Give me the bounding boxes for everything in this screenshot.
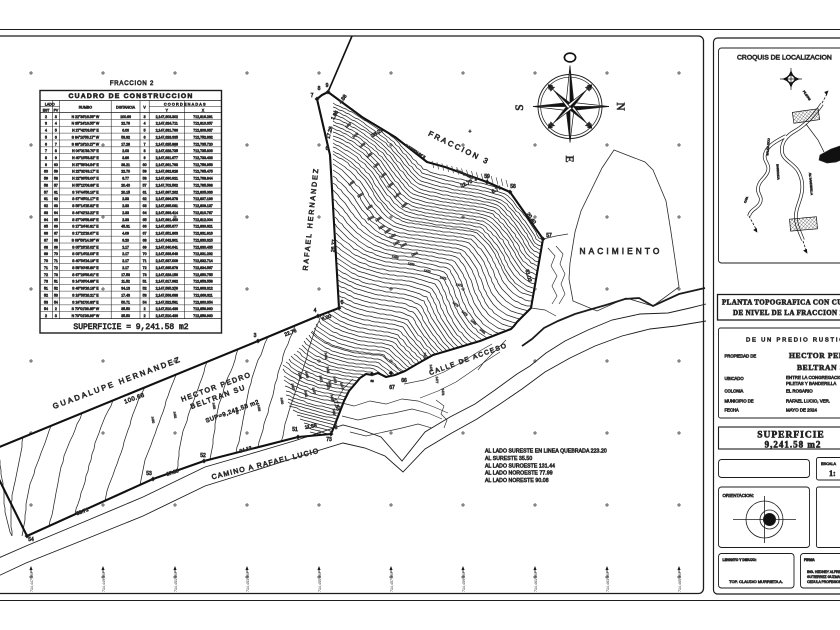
svg-text:70: 70: [54, 252, 58, 256]
svg-text:S 27°24'40.81" E: S 27°24'40.81" E: [72, 225, 99, 229]
svg-text:714,449,500: 714,449,500: [102, 572, 106, 592]
svg-text:71: 71: [143, 259, 147, 263]
svg-text:S: S: [514, 104, 526, 110]
svg-text:57: 57: [143, 184, 147, 188]
svg-text:71: 71: [54, 259, 58, 263]
svg-text:1483: 1483: [328, 380, 333, 387]
svg-text:67: 67: [44, 238, 48, 242]
svg-text:S 67°29'56.61" E: S 67°29'56.61" E: [72, 273, 99, 277]
svg-text:58: 58: [143, 177, 147, 181]
svg-text:712,752.862: 712,752.862: [193, 135, 213, 139]
svg-text:AL LADO NORESTE 90.08: AL LADO NORESTE 90.08: [485, 478, 549, 484]
svg-text:ESCALA: ESCALA: [821, 462, 836, 466]
svg-text:2,147,585.279: 2,147,585.279: [156, 287, 178, 291]
svg-text:CUADRO DE CONSTRUCCION: CUADRO DE CONSTRUCCION: [69, 93, 194, 100]
svg-text:1476: 1476: [429, 365, 433, 372]
svg-text:70: 70: [44, 259, 48, 263]
svg-text:S 14°03'04.88" E: S 14°03'04.88" E: [72, 280, 99, 284]
svg-text:1:: 1:: [829, 469, 836, 478]
svg-text:22.76: 22.76: [121, 122, 130, 126]
svg-text:2,147,655.677: 2,147,655.677: [156, 225, 178, 229]
svg-text:3: 3: [144, 115, 146, 119]
svg-text:N 22°36'53.00" E: N 22°36'53.00" E: [72, 177, 99, 181]
svg-text:712,830.435: 712,830.435: [193, 245, 213, 249]
svg-text:64: 64: [143, 211, 147, 215]
svg-text:54: 54: [143, 300, 147, 304]
svg-text:N 70°01'36.86" W: N 70°01'36.86" W: [72, 314, 100, 318]
svg-text:72: 72: [44, 273, 48, 277]
svg-text:60: 60: [143, 163, 147, 167]
svg-text:57: 57: [546, 233, 552, 239]
svg-text:E: E: [563, 155, 575, 162]
svg-text:712,860.354: 712,860.354: [193, 300, 213, 304]
svg-text:2,147,693.414: 2,147,693.414: [156, 211, 178, 215]
svg-text:FECHA: FECHA: [725, 408, 739, 413]
svg-text:2: 2: [55, 307, 57, 311]
svg-text:712,856.960: 712,856.960: [193, 307, 213, 311]
svg-text:FIRMA: FIRMA: [804, 558, 815, 562]
svg-text:714,463,500: 714,463,500: [606, 572, 610, 592]
svg-text:58: 58: [510, 184, 516, 190]
svg-text:1478: 1478: [441, 389, 445, 396]
svg-text:51: 51: [292, 427, 298, 433]
svg-text:2,147,625.808: 2,147,625.808: [156, 142, 178, 146]
svg-text:8.77: 8.77: [122, 177, 129, 181]
svg-text:N 04°01'39.70" E: N 04°01'39.70" E: [72, 149, 99, 153]
svg-text:712,831.916: 712,831.916: [193, 232, 213, 236]
svg-text:UBICADO: UBICADO: [725, 376, 745, 381]
svg-text:8: 8: [45, 156, 47, 160]
svg-text:LADO: LADO: [45, 102, 55, 106]
svg-text:712,735.806: 712,735.806: [193, 149, 213, 153]
svg-text:6: 6: [144, 135, 146, 139]
svg-text:AL LADO SUROESTE 131.44: AL LADO SUROESTE 131.44: [485, 463, 555, 469]
svg-text:2,147,690.921: 2,147,690.921: [156, 177, 178, 181]
svg-text:712,816.291: 712,816.291: [193, 115, 213, 119]
svg-text:714,455,500: 714,455,500: [318, 572, 322, 592]
svg-text:N 35°24'16.55" W: N 35°24'16.55" W: [72, 122, 100, 126]
svg-text:2: 2: [45, 115, 47, 119]
svg-text:9: 9: [55, 156, 57, 160]
svg-text:2.33: 2.33: [122, 218, 129, 222]
svg-text:2,147,510.436: 2,147,510.436: [156, 307, 178, 311]
svg-text:712,850.755: 712,850.755: [193, 273, 213, 277]
svg-text:3.86: 3.86: [122, 156, 129, 160]
svg-text:63: 63: [54, 204, 58, 208]
svg-text:70: 70: [143, 252, 147, 256]
svg-text:FRACCION 2: FRACCION 2: [110, 81, 154, 87]
svg-text:2.17: 2.17: [122, 252, 129, 256]
svg-text:ORIENTACION:: ORIENTACION:: [723, 493, 754, 498]
svg-text:59: 59: [484, 174, 490, 180]
svg-text:2.33: 2.33: [122, 211, 129, 215]
svg-text:HECTOR PEDRO: HECTOR PEDRO: [789, 351, 840, 360]
svg-text:11.52: 11.52: [121, 280, 130, 284]
svg-text:N 22°36'16.56" W: N 22°36'16.56" W: [72, 115, 100, 119]
svg-text:60: 60: [54, 163, 58, 167]
svg-text:2,147,628.335: 2,147,628.335: [156, 135, 178, 139]
svg-text:1485: 1485: [332, 408, 337, 415]
svg-text:53: 53: [54, 293, 58, 297]
svg-text:2: 2: [144, 314, 146, 318]
svg-text:712,831.292: 712,831.292: [193, 252, 213, 256]
svg-text:50.71: 50.71: [121, 300, 130, 304]
svg-text:68: 68: [44, 245, 48, 249]
svg-text:N 22°02'43.17" E: N 22°02'43.17" E: [72, 170, 99, 174]
svg-text:5: 5: [55, 129, 57, 133]
svg-text:N 55°12'09.88" E: N 55°12'09.88" E: [72, 184, 99, 188]
svg-text:4: 4: [55, 122, 57, 126]
svg-text:72: 72: [143, 266, 147, 270]
svg-text:3: 3: [254, 333, 257, 339]
svg-text:712,812.004: 712,812.004: [193, 218, 213, 222]
svg-text:2.03: 2.03: [122, 149, 129, 153]
svg-text:S 74°44'56.10" E: S 74°44'56.10" E: [72, 190, 99, 194]
svg-text:712,733.433: 712,733.433: [193, 156, 213, 160]
svg-text:17.28: 17.28: [121, 142, 130, 146]
svg-text:2,147,682.828: 2,147,682.828: [156, 170, 178, 174]
svg-text:712,807.196: 712,807.196: [193, 197, 213, 201]
svg-text:6.06: 6.06: [122, 129, 129, 133]
svg-text:714,459,500: 714,459,500: [462, 572, 466, 592]
svg-text:PILETAS Y BANDERILLA: PILETAS Y BANDERILLA: [786, 381, 836, 386]
svg-text:57: 57: [44, 190, 48, 194]
svg-text:2,147,642.801: 2,147,642.801: [156, 238, 178, 242]
svg-text:EL ROSARIO: EL ROSARIO: [786, 389, 813, 394]
svg-text:S 88°18'10.27" W: S 88°18'10.27" W: [72, 142, 100, 146]
svg-text:+: +: [469, 129, 472, 135]
svg-text:65: 65: [54, 218, 58, 222]
svg-text:712,853.558: 712,853.558: [193, 280, 213, 284]
svg-text:51: 51: [143, 280, 147, 284]
svg-text:73: 73: [143, 273, 147, 277]
svg-text:S 44°42'13.22" E: S 44°42'13.22" E: [72, 211, 99, 215]
svg-text:MUNICIPIO DE: MUNICIPIO DE: [725, 399, 754, 404]
svg-text:2,147,617.982: 2,147,617.982: [156, 280, 178, 284]
svg-text:63: 63: [143, 204, 147, 208]
svg-text:22.70: 22.70: [121, 170, 130, 174]
svg-text:2,147,640.641: 2,147,640.641: [156, 245, 178, 249]
svg-text:4: 4: [45, 129, 47, 133]
svg-text:6: 6: [341, 300, 344, 306]
svg-text:714,465,500: 714,465,500: [678, 572, 682, 592]
svg-text:2,147,510.436: 2,147,510.436: [156, 314, 178, 318]
svg-text:S 46°39'26.18" E: S 46°39'26.18" E: [72, 287, 99, 291]
svg-text:S 58°30'45.80" E: S 58°30'45.80" E: [72, 266, 99, 270]
svg-text:62: 62: [54, 197, 58, 201]
svg-text:5: 5: [45, 135, 47, 139]
svg-text:2,147,603.302: 2,147,603.302: [156, 115, 178, 119]
svg-text:712,756.956: 712,756.956: [193, 163, 213, 167]
svg-text:AL LADO NOROESTE 77.99: AL LADO NOROESTE 77.99: [485, 471, 553, 477]
svg-text:67: 67: [389, 385, 395, 391]
svg-text:3: 3: [55, 115, 57, 119]
svg-text:67: 67: [54, 232, 58, 236]
svg-text:DE NIVEL DE LA FRACCION 2: DE NIVEL DE LA FRACCION 2: [733, 309, 840, 317]
svg-text:712,765.475: 712,765.475: [193, 170, 213, 174]
svg-text:20.40: 20.40: [121, 184, 130, 188]
svg-text:714,457,500: 714,457,500: [390, 572, 394, 592]
svg-text:S 24°31'00.83" E: S 24°31'00.83" E: [72, 300, 99, 304]
svg-text:S 84°10'56.17" W: S 84°10'56.17" W: [72, 135, 100, 139]
svg-text:S 37°09'58.63" E: S 37°09'58.63" E: [72, 218, 99, 222]
svg-text:N 37°59'34.54" E: N 37°59'34.54" E: [72, 163, 99, 167]
svg-text:73: 73: [326, 437, 332, 443]
svg-text:1482: 1482: [326, 366, 331, 373]
svg-text:2,147,624.711: 2,147,624.711: [156, 122, 178, 126]
svg-text:52: 52: [44, 293, 48, 297]
svg-text:2,147,661.793: 2,147,661.793: [156, 163, 178, 167]
svg-text:712,785.598: 712,785.598: [193, 184, 213, 188]
svg-text:61: 61: [143, 190, 147, 194]
svg-text:66: 66: [143, 225, 147, 229]
svg-text:65: 65: [44, 225, 48, 229]
svg-text:69: 69: [54, 245, 58, 249]
svg-text:1486: 1486: [334, 422, 339, 429]
svg-text:DE UN PREDIO RUSTICO: DE UN PREDIO RUSTICO: [746, 338, 840, 344]
svg-text:PROPIEDAD DE: PROPIEDAD DE: [725, 354, 757, 359]
svg-text:RUMBO: RUMBO: [79, 106, 93, 110]
svg-text:S 56°14'25.82" E: S 56°14'25.82" E: [72, 204, 99, 208]
svg-text:9: 9: [45, 163, 47, 167]
svg-text:2,147,697.262: 2,147,697.262: [156, 190, 178, 194]
svg-text:59: 59: [143, 170, 147, 174]
svg-text:DISTANCIA: DISTANCIA: [116, 106, 136, 110]
svg-text:712,806.637: 712,806.637: [193, 129, 213, 133]
svg-text:7: 7: [45, 149, 47, 153]
svg-text:4: 4: [144, 122, 146, 126]
svg-text:2.17: 2.17: [122, 259, 129, 263]
svg-text:2,147,637.009: 2,147,637.009: [156, 259, 178, 263]
svg-text:714,453,500: 714,453,500: [246, 572, 250, 592]
svg-text:2,147,628.735: 2,147,628.735: [156, 149, 178, 153]
svg-text:73: 73: [44, 280, 48, 284]
svg-text:54: 54: [28, 537, 34, 543]
svg-text:64: 64: [54, 211, 58, 215]
svg-text:66: 66: [54, 225, 58, 229]
svg-text:712,869.311: 712,869.311: [193, 293, 212, 297]
svg-text:714,461,500: 714,461,500: [534, 572, 538, 592]
svg-text:68: 68: [54, 238, 58, 242]
svg-text:712,856.960: 712,856.960: [193, 314, 213, 318]
svg-text:69: 69: [44, 252, 48, 256]
svg-text:S 17°22'29.67" E: S 17°22'29.67" E: [72, 232, 99, 236]
svg-text:58: 58: [54, 177, 58, 181]
svg-text:2,147,522.581: 2,147,522.581: [156, 300, 178, 304]
svg-text:ENTRE LA CONGREGACION: ENTRE LA CONGREGACION: [786, 375, 840, 380]
svg-text:S 03°14'02.03" E: S 03°14'02.03" E: [72, 252, 99, 256]
svg-text:62: 62: [44, 204, 48, 208]
svg-text:51: 51: [54, 280, 58, 284]
svg-text:1477: 1477: [435, 377, 439, 384]
svg-text:3: 3: [55, 314, 57, 318]
svg-text:2.17: 2.17: [122, 266, 129, 270]
svg-text:6: 6: [45, 142, 47, 146]
svg-text:AL LADO SURESTE EN LINEA QUEBR: AL LADO SURESTE EN LINEA QUEBRADA 223.20: [485, 449, 607, 455]
svg-text:2.33: 2.33: [122, 204, 129, 208]
svg-text:53: 53: [44, 300, 48, 304]
svg-text:72: 72: [54, 266, 58, 270]
svg-text:6: 6: [55, 135, 57, 139]
svg-text:NACIMIENTO: NACIMIENTO: [580, 246, 663, 256]
svg-text:17.53: 17.53: [121, 273, 130, 277]
svg-text:S 40°54'24.19" E: S 40°54'24.19" E: [72, 259, 99, 263]
svg-text:9,241.58 m2: 9,241.58 m2: [765, 440, 822, 450]
svg-text:PV: PV: [54, 108, 59, 112]
svg-text:2,147,696.378: 2,147,696.378: [156, 197, 178, 201]
svg-text:71: 71: [44, 266, 48, 270]
svg-text:TOP. CLAUDIO MURRIETA A.: TOP. CLAUDIO MURRIETA A.: [729, 579, 783, 584]
svg-text:COORDENADAS: COORDENADAS: [164, 102, 207, 106]
svg-text:52: 52: [54, 287, 58, 291]
svg-text:5: 5: [144, 129, 146, 133]
svg-text:8: 8: [144, 149, 146, 153]
svg-text:712,830.621: 712,830.621: [193, 225, 213, 229]
svg-text:54: 54: [44, 307, 48, 311]
svg-text:BELTRAN SOLANO: BELTRAN SOLANO: [797, 363, 840, 372]
svg-text:2: 2: [144, 307, 146, 311]
svg-text:SUPERFICIE = 9,241.58 m2: SUPERFICIE = 9,241.58 m2: [73, 323, 188, 332]
svg-text:7: 7: [144, 142, 146, 146]
svg-text:LEVANTO Y DIBUJO:: LEVANTO Y DIBUJO:: [723, 558, 757, 562]
svg-text:712,810.357: 712,810.357: [193, 122, 213, 126]
svg-text:20.15: 20.15: [121, 190, 130, 194]
svg-text:59: 59: [44, 177, 48, 181]
svg-text:712,834.567: 712,834.567: [193, 266, 213, 270]
svg-text:2,147,691.460: 2,147,691.460: [156, 218, 178, 222]
svg-text:4.09: 4.09: [122, 232, 129, 236]
svg-text:1484: 1484: [330, 394, 335, 401]
svg-text:9: 9: [326, 83, 329, 89]
svg-text:7: 7: [311, 93, 314, 99]
svg-text:45.31: 45.31: [121, 225, 130, 229]
svg-text:712,810.787: 712,810.787: [193, 211, 213, 215]
svg-text:66: 66: [44, 232, 48, 236]
svg-text:35.50: 35.50: [121, 314, 130, 318]
svg-text:53.92: 53.92: [121, 135, 130, 139]
svg-text:ING. HEDNEY ALFREDO: ING. HEDNEY ALFREDO: [807, 570, 840, 574]
svg-text:CEDULA PROFESIONAL: CEDULA PROFESIONAL: [807, 580, 840, 584]
svg-text:N 40°16'53.32" E: N 40°16'53.32" E: [72, 156, 99, 160]
svg-text:AL SURESTE 35.50: AL SURESTE 35.50: [485, 456, 532, 462]
svg-text:2,147,629.156: 2,147,629.156: [156, 273, 178, 277]
svg-text:4: 4: [314, 308, 317, 314]
svg-text:53: 53: [146, 471, 152, 477]
svg-text:8: 8: [55, 149, 57, 153]
svg-text:58: 58: [44, 184, 48, 188]
svg-text:714,451,500: 714,451,500: [174, 572, 178, 592]
svg-text:34.13: 34.13: [121, 287, 130, 291]
svg-text:59: 59: [54, 170, 58, 174]
svg-text:MAYO DE 2024: MAYO DE 2024: [786, 408, 817, 413]
svg-text:RAFAEL LUCIO, VER.: RAFAEL LUCIO, VER.: [786, 399, 830, 404]
svg-text:PLANTA TOPOGRAFICA CON CURVAS: PLANTA TOPOGRAFICA CON CURVAS: [722, 299, 840, 307]
svg-text:2.17: 2.17: [122, 245, 129, 249]
svg-text:73: 73: [54, 273, 58, 277]
svg-text:2,147,631.677: 2,147,631.677: [156, 156, 178, 160]
svg-text:714,447,500: 714,447,500: [30, 572, 34, 592]
svg-text:2,147,638.648: 2,147,638.648: [156, 252, 178, 256]
svg-text:CROQUIS DE LOCALIZACION: CROQUIS DE LOCALIZACION: [737, 55, 832, 62]
svg-text:712,863.312: 712,863.312: [193, 287, 213, 291]
svg-text:1481: 1481: [324, 352, 329, 359]
svg-text:EST: EST: [43, 108, 50, 112]
svg-text:35.50: 35.50: [121, 307, 130, 311]
svg-text:2,147,568.688: 2,147,568.688: [156, 293, 178, 297]
svg-text:2,147,631.796: 2,147,631.796: [156, 129, 178, 133]
svg-text:712,809.137: 712,809.137: [193, 204, 213, 208]
svg-text:712,832.714: 712,832.714: [193, 259, 213, 263]
svg-text:52: 52: [200, 453, 206, 459]
svg-text:S 19°53'26.21" E: S 19°53'26.21" E: [72, 293, 99, 297]
svg-text:7: 7: [55, 142, 57, 146]
svg-text:2.33: 2.33: [122, 197, 129, 201]
svg-text:712,768.844: 712,768.844: [193, 177, 213, 181]
svg-text:9: 9: [144, 156, 146, 160]
svg-text:3: 3: [45, 122, 47, 126]
svg-text:52: 52: [143, 287, 147, 291]
svg-text:69: 69: [143, 245, 147, 249]
svg-text:67: 67: [143, 232, 147, 236]
svg-text:38.21: 38.21: [121, 163, 130, 167]
svg-text:66: 66: [401, 378, 407, 384]
svg-text:57: 57: [54, 184, 58, 188]
svg-text:S 67°45'01.17" E: S 67°45'01.17" E: [72, 197, 99, 201]
svg-text:2,147,651.863: 2,147,651.863: [156, 232, 178, 236]
svg-text:8: 8: [318, 86, 321, 92]
svg-text:GUTIERREZ GUZMAN: GUTIERREZ GUZMAN: [807, 575, 840, 579]
svg-text:6: 6: [326, 146, 329, 152]
svg-text:53: 53: [143, 293, 147, 297]
svg-text:S 70°01'36.85" W: S 70°01'36.85" W: [72, 307, 100, 311]
svg-text:S 05°23'15.02" E: S 05°23'15.02" E: [72, 245, 99, 249]
svg-text:2,147,702.562: 2,147,702.562: [156, 184, 178, 188]
svg-text:S 09°59'14.39" W: S 09°59'14.39" W: [72, 238, 100, 242]
svg-text:61: 61: [54, 190, 58, 194]
svg-text:62: 62: [143, 197, 147, 201]
svg-text:9.20: 9.20: [122, 238, 129, 242]
svg-text:63: 63: [44, 211, 48, 215]
svg-text:712,830.315: 712,830.315: [193, 238, 213, 242]
svg-text:54: 54: [54, 300, 58, 304]
svg-text:COLONIA: COLONIA: [725, 389, 744, 394]
svg-text:2,147,635.878: 2,147,635.878: [156, 266, 178, 270]
svg-text:712,805.036: 712,805.036: [193, 190, 213, 194]
svg-text:2: 2: [45, 314, 47, 318]
svg-text:712,735.720: 712,735.720: [193, 142, 213, 146]
svg-text:17.43: 17.43: [121, 293, 130, 297]
svg-text:N: N: [614, 102, 626, 111]
svg-text:2,147,695.081: 2,147,695.081: [156, 204, 178, 208]
svg-text:100.66: 100.66: [120, 115, 131, 119]
svg-text:N 27°42'03.53" E: N 27°42'03.53" E: [72, 129, 99, 133]
svg-text:60: 60: [44, 170, 48, 174]
svg-text:61: 61: [44, 197, 48, 201]
svg-text:68: 68: [143, 238, 147, 242]
svg-text:65: 65: [143, 218, 147, 222]
svg-text:1475: 1475: [423, 353, 427, 360]
svg-text:51: 51: [44, 287, 48, 291]
svg-text:64: 64: [44, 218, 48, 222]
